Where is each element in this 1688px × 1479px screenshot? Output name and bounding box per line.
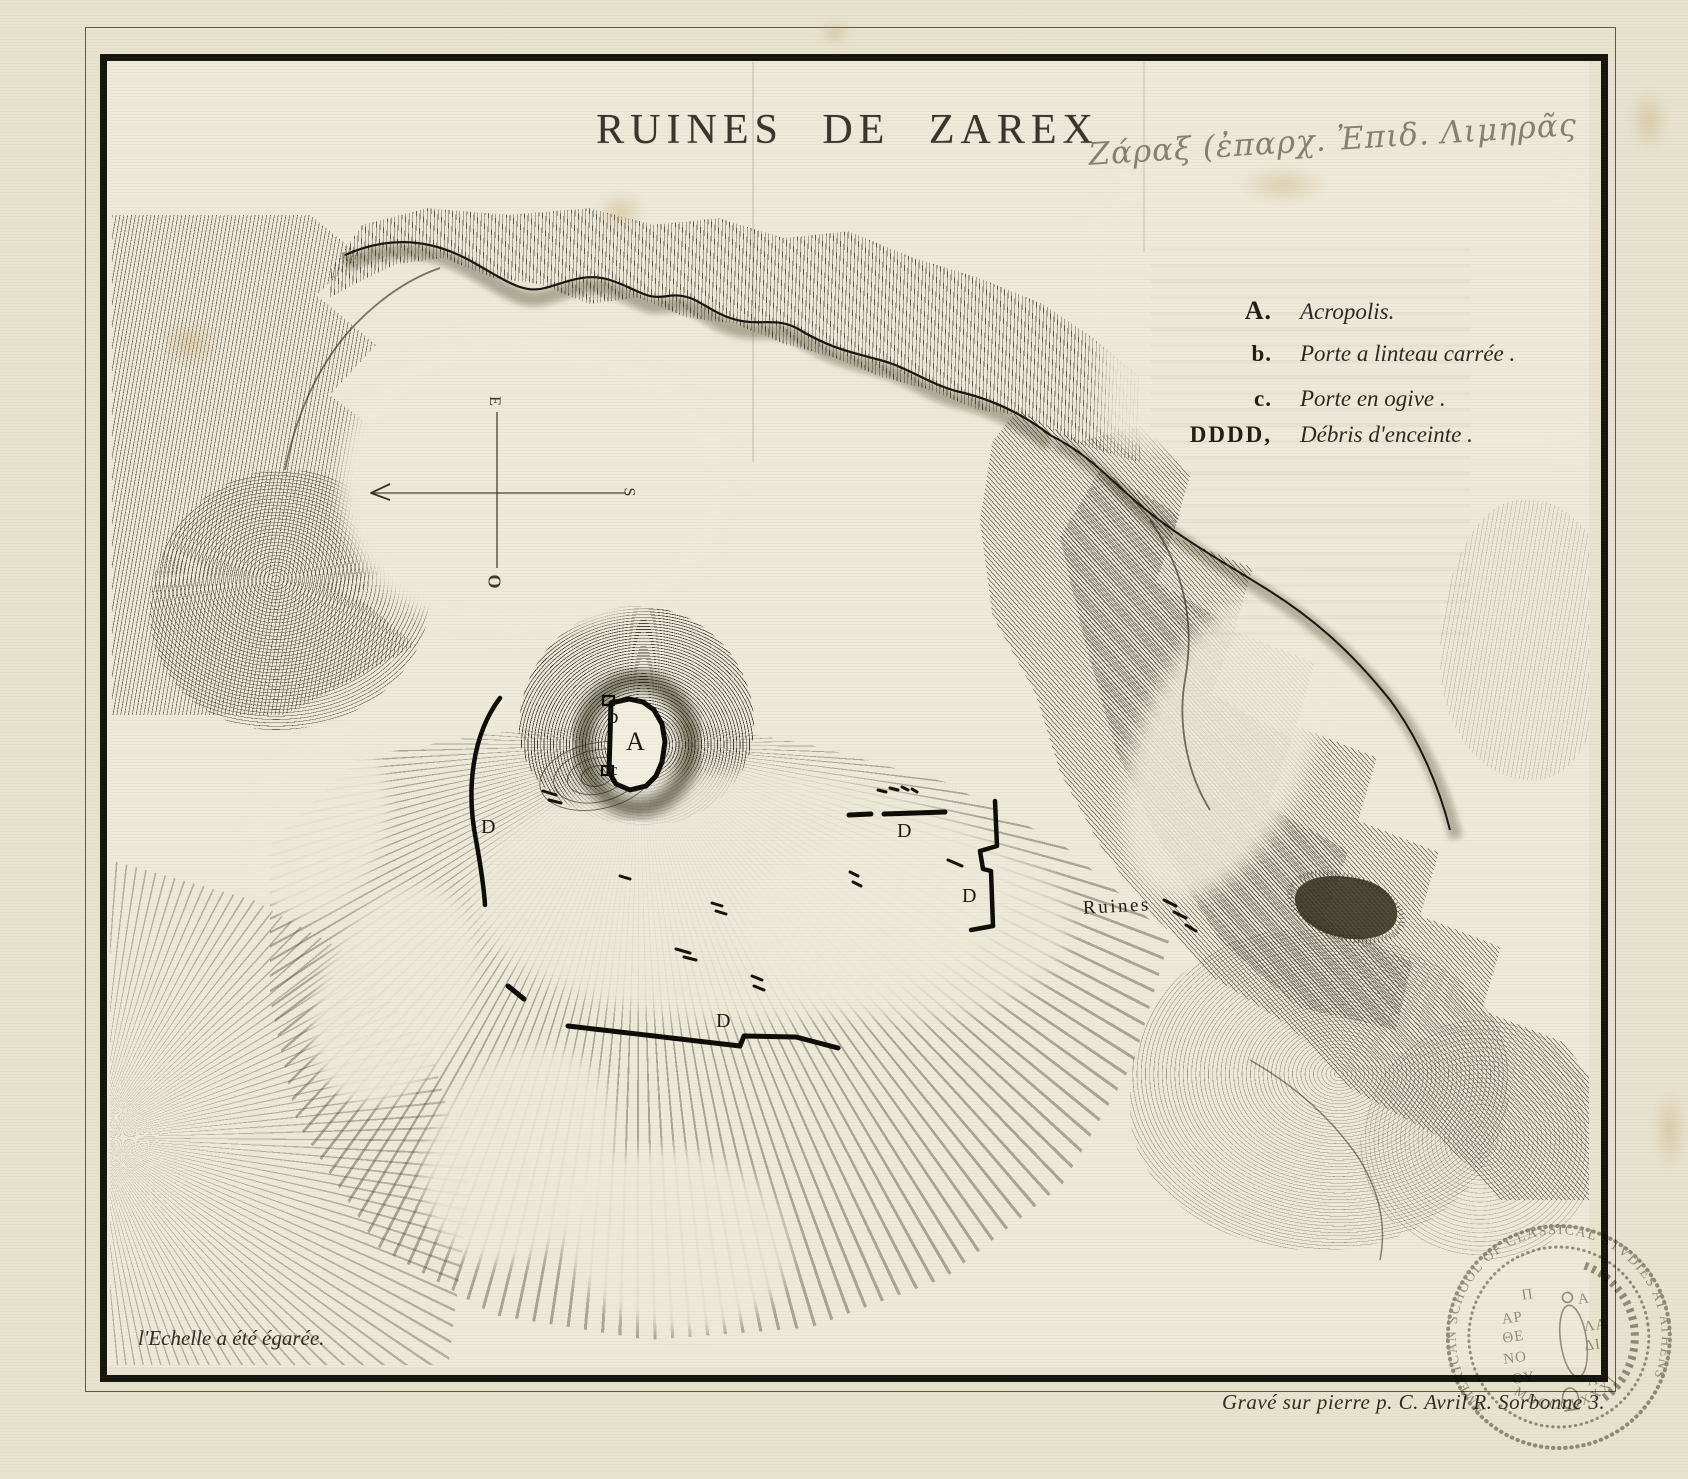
legend-key: b. [1180,341,1272,367]
compass-south-label: S [619,488,637,497]
legend-item: DDDD, Débris d'enceinte . [1180,422,1473,448]
foxing-spot [1628,88,1670,152]
stamp-glyph: ΘΕ [1501,1328,1525,1347]
compass-west-label: O [484,574,505,588]
svg-text:AMERICAN SCHOOL OF CLASSICAL S: AMERICAN SCHOOL OF CLASSICAL STVDIES AT … [1430,1208,1681,1420]
stamp-glyph: Π [1521,1286,1535,1303]
foxing-spot [1652,1090,1688,1170]
stamp-glyph: Α [1586,1372,1600,1389]
compass-east-label: E [485,396,503,406]
stamp-glyph: ΑΡ [1501,1309,1524,1328]
library-stamp: AMERICAN SCHOOL OF CLASSICAL STVDIES AT … [1421,1197,1688,1479]
ruins-label: Ruines [1082,894,1151,920]
wall-label-d: D [716,1010,730,1033]
legend-label: Porte en ogive . [1300,386,1446,412]
gate-c-label: c [610,760,618,780]
stamp-glyph: Α [1577,1290,1591,1307]
legend-key: A. [1180,296,1272,326]
map-legend: A. Acropolis. b. Porte a linteau carrée … [1180,296,1600,466]
stamp-glyph: ΝΟ [1502,1349,1528,1368]
map-frame-inner [100,54,1608,1382]
wall-label-d: D [962,885,976,908]
legend-item: A. Acropolis. [1180,296,1394,326]
legend-label: Acropolis. [1300,299,1394,325]
legend-item: c. Porte en ogive . [1180,386,1446,412]
scale-note: l'Echelle a été égarée. [138,1326,324,1351]
stamp-glyph: ΔΙ [1583,1336,1602,1354]
legend-key: c. [1180,386,1272,412]
stamp-glyph: ΟΥ [1511,1369,1536,1388]
gate-b-label: b [608,704,619,729]
legend-label: Porte a linteau carrée . [1300,341,1515,367]
stamp-rim-text: AMERICAN SCHOOL OF CLASSICAL STVDIES AT … [1430,1208,1681,1420]
legend-key: DDDD, [1180,422,1272,448]
stamp-outer-ring [1433,1212,1684,1463]
legend-label: Débris d'enceinte . [1300,422,1473,448]
map-sheet: { "sheet": { "title": "RUINES DE ZAREX",… [0,0,1688,1471]
stamp-glyph: ΛΑ [1583,1316,1609,1335]
wall-label-d: D [897,820,911,843]
legend-item: b. Porte a linteau carrée . [1180,341,1515,367]
wall-label-d: D [481,816,495,839]
acropolis-label: A [626,727,645,757]
